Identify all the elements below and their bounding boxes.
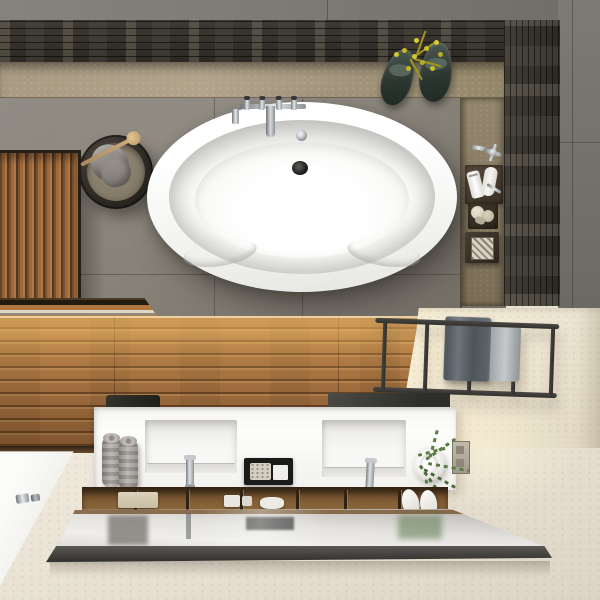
wooden-slat-bench	[0, 150, 81, 310]
flower-stem	[414, 58, 442, 67]
faucet-handle	[291, 96, 297, 110]
ladder-rung	[549, 327, 555, 396]
tub-drain	[292, 161, 308, 175]
white-bottle	[481, 166, 499, 197]
bathroom-top-view	[0, 0, 600, 600]
wicker-side-table	[79, 135, 153, 209]
speckled-soap	[250, 463, 271, 480]
soap-dish	[273, 465, 288, 480]
ladder-rung	[381, 321, 387, 390]
drain-part	[31, 494, 41, 502]
mosaic-tile-border-horizontal	[0, 20, 562, 64]
toiletry-tray	[465, 165, 503, 204]
faucet-handle	[276, 96, 283, 110]
hanging-towel-light	[489, 325, 521, 382]
soap-tray	[468, 203, 498, 229]
flower-blossoms	[412, 54, 417, 59]
faucet-handle	[259, 96, 266, 110]
tub-overflow-cap	[296, 130, 307, 141]
plant-frond	[428, 462, 470, 472]
decor-box	[465, 232, 499, 263]
faucet-spout	[266, 106, 275, 137]
mosaic-tile-border-vertical	[504, 20, 560, 306]
white-dish	[260, 497, 284, 509]
shelf-divider	[296, 490, 299, 511]
yellow-flower-sprig	[380, 26, 454, 84]
decor-box-lid	[471, 237, 494, 260]
black-amenity-tray	[244, 458, 293, 485]
drain-part	[15, 493, 29, 504]
ladder-rung	[423, 323, 429, 392]
right-gray-tile-wall	[558, 0, 600, 314]
folded-towel-pad	[118, 492, 158, 508]
soap-bar	[224, 495, 240, 507]
faucet-handle	[244, 96, 250, 110]
shelf-divider	[398, 490, 401, 511]
soap-bar	[242, 496, 252, 506]
faucet-diverter	[232, 109, 239, 124]
shelf-divider	[344, 490, 347, 511]
mirror-frame-shadow	[50, 561, 550, 577]
shelf-divider	[186, 490, 189, 511]
rolled-towel	[119, 439, 138, 491]
